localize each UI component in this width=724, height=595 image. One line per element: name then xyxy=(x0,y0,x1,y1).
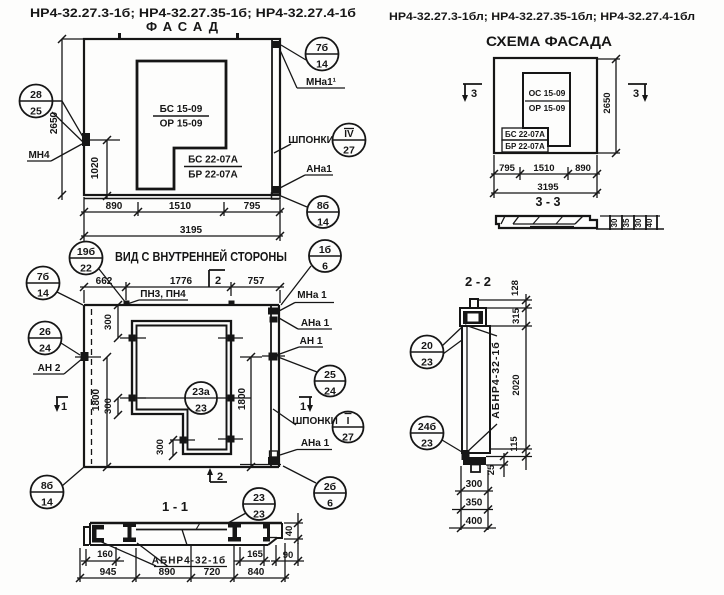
svg-text:МНа1¹: МНа1¹ xyxy=(306,77,337,88)
svg-text:14: 14 xyxy=(317,217,329,229)
svg-text:30: 30 xyxy=(634,218,643,227)
svg-text:НР4-32.27.3-1б; НР4-32.27.35-1: НР4-32.27.3-1б; НР4-32.27.35-1б; НР4-32.… xyxy=(30,6,356,20)
svg-text:3: 3 xyxy=(471,88,477,100)
svg-text:23: 23 xyxy=(253,509,265,521)
svg-text:23а: 23а xyxy=(192,386,210,398)
svg-text:25: 25 xyxy=(30,106,42,118)
svg-text:1: 1 xyxy=(300,401,306,413)
svg-text:40: 40 xyxy=(645,218,654,227)
svg-text:6: 6 xyxy=(322,261,328,273)
svg-text:АНа1: АНа1 xyxy=(306,164,332,175)
svg-text:2: 2 xyxy=(215,275,221,287)
svg-text:315: 315 xyxy=(511,307,522,324)
svg-text:ФАСАД: ФАСАД xyxy=(146,19,224,34)
svg-text:2650: 2650 xyxy=(602,92,613,113)
svg-text:14: 14 xyxy=(41,497,53,509)
svg-text:23: 23 xyxy=(253,492,265,504)
svg-text:1510: 1510 xyxy=(533,163,554,174)
svg-text:90: 90 xyxy=(283,550,294,561)
svg-text:8б: 8б xyxy=(317,200,330,212)
svg-text:890: 890 xyxy=(106,201,123,212)
svg-text:35: 35 xyxy=(622,218,631,227)
svg-text:14: 14 xyxy=(316,59,328,71)
svg-text:40: 40 xyxy=(284,526,295,537)
svg-text:7б: 7б xyxy=(316,42,329,54)
svg-text:АБНР4-32-1б: АБНР4-32-1б xyxy=(490,341,502,419)
svg-text:890: 890 xyxy=(575,163,591,174)
svg-text:1б: 1б xyxy=(319,244,332,256)
svg-text:8б: 8б xyxy=(41,480,54,492)
svg-text:27: 27 xyxy=(343,145,355,157)
svg-text:АН 2: АН 2 xyxy=(38,363,61,374)
svg-text:2 - 2: 2 - 2 xyxy=(465,274,491,289)
svg-text:ОС 15-09: ОС 15-09 xyxy=(529,88,566,98)
svg-text:2020: 2020 xyxy=(511,374,522,395)
svg-text:3195: 3195 xyxy=(180,225,203,236)
svg-text:3 - 3: 3 - 3 xyxy=(535,195,560,209)
svg-text:ОР 15-09: ОР 15-09 xyxy=(160,119,203,130)
svg-text:НР4-32.27.3-1бл; НР4-32.27.35-: НР4-32.27.3-1бл; НР4-32.27.35-1бл; НР4-3… xyxy=(389,11,695,23)
svg-text:1800: 1800 xyxy=(237,387,248,410)
svg-text:128: 128 xyxy=(510,280,521,296)
svg-text:22: 22 xyxy=(80,263,92,275)
svg-text:24б: 24б xyxy=(418,421,437,433)
svg-text:24: 24 xyxy=(39,343,51,355)
svg-text:ОР 15-09: ОР 15-09 xyxy=(529,103,566,113)
svg-text:ШПОНКИ: ШПОНКИ xyxy=(288,135,334,146)
svg-text:115: 115 xyxy=(509,436,520,452)
svg-text:АБНР4-32-1б: АБНР4-32-1б xyxy=(152,555,226,567)
svg-text:3: 3 xyxy=(633,88,639,100)
svg-text:БС 15-09: БС 15-09 xyxy=(160,104,203,115)
svg-text:300: 300 xyxy=(103,314,114,330)
svg-text:БР 22-07А: БР 22-07А xyxy=(505,142,545,151)
svg-text:1776: 1776 xyxy=(170,276,193,287)
svg-text:IV: IV xyxy=(344,129,354,140)
svg-text:300: 300 xyxy=(466,479,483,490)
svg-text:ПН3, ПН4: ПН3, ПН4 xyxy=(140,289,186,300)
svg-text:25: 25 xyxy=(324,369,336,381)
svg-text:7б: 7б xyxy=(37,271,50,283)
svg-text:720: 720 xyxy=(204,567,221,578)
svg-text:350: 350 xyxy=(466,498,483,509)
svg-text:2650: 2650 xyxy=(49,111,60,134)
svg-text:ШПОНКИ: ШПОНКИ xyxy=(292,416,338,427)
svg-text:757: 757 xyxy=(248,276,265,287)
svg-text:28: 28 xyxy=(30,89,42,101)
svg-text:АНа 1: АНа 1 xyxy=(301,438,330,449)
svg-text:300: 300 xyxy=(103,398,114,414)
svg-text:26: 26 xyxy=(39,326,51,338)
svg-text:БС 22-07А: БС 22-07А xyxy=(505,130,545,139)
svg-text:6: 6 xyxy=(327,498,333,510)
svg-text:МН4: МН4 xyxy=(28,150,50,161)
svg-text:30: 30 xyxy=(610,218,619,227)
svg-text:АН 1: АН 1 xyxy=(300,336,323,347)
svg-text:23: 23 xyxy=(195,403,207,415)
svg-text:27: 27 xyxy=(342,432,354,444)
svg-text:БС 22-07А: БС 22-07А xyxy=(188,155,238,166)
svg-text:1 - 1: 1 - 1 xyxy=(162,499,188,514)
svg-text:СХЕМА ФАСАДА: СХЕМА ФАСАДА xyxy=(486,34,612,49)
svg-text:24: 24 xyxy=(324,386,336,398)
svg-text:I: I xyxy=(347,416,350,427)
svg-text:400: 400 xyxy=(466,516,483,527)
svg-text:840: 840 xyxy=(248,567,265,578)
svg-text:МНа 1: МНа 1 xyxy=(297,290,327,301)
svg-text:ВИД С ВНУТРЕННЕЙ СТОРОНЫ: ВИД С ВНУТРЕННЕЙ СТОРОНЫ xyxy=(115,249,287,264)
svg-text:1: 1 xyxy=(61,401,67,413)
svg-text:23: 23 xyxy=(421,438,433,450)
svg-text:АНа 1: АНа 1 xyxy=(301,318,330,329)
svg-text:890: 890 xyxy=(159,567,176,578)
svg-text:20: 20 xyxy=(421,340,433,352)
svg-text:2б: 2б xyxy=(324,481,337,493)
svg-text:300: 300 xyxy=(155,439,166,455)
svg-text:14: 14 xyxy=(37,288,49,300)
svg-text:1800: 1800 xyxy=(91,388,102,411)
svg-text:БР 22-07А: БР 22-07А xyxy=(188,170,237,181)
svg-text:795: 795 xyxy=(244,201,261,212)
svg-text:662: 662 xyxy=(96,276,113,287)
svg-text:945: 945 xyxy=(100,567,117,578)
svg-text:3195: 3195 xyxy=(537,182,559,193)
svg-text:2: 2 xyxy=(217,471,223,483)
svg-text:1020: 1020 xyxy=(90,156,101,179)
svg-text:160: 160 xyxy=(97,549,113,560)
svg-text:795: 795 xyxy=(499,163,516,174)
svg-text:1510: 1510 xyxy=(169,201,192,212)
svg-text:165: 165 xyxy=(247,549,264,560)
svg-text:19б: 19б xyxy=(77,246,96,258)
svg-text:23: 23 xyxy=(421,357,433,369)
